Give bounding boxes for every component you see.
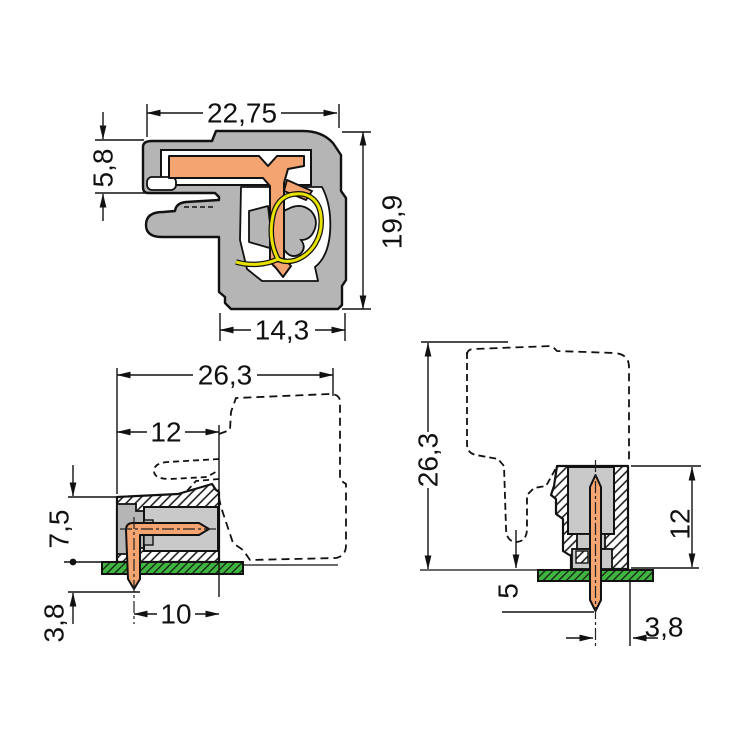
view-header-front: 26,3 12 5 3,8 — [413, 342, 702, 648]
pcb-board — [102, 562, 243, 574]
pedestal-hatch-detail — [576, 551, 588, 563]
mating-connector-dashed-lever — [154, 459, 219, 479]
dim-overall-height-label: 19,9 — [377, 195, 408, 250]
dim-base-width-label: 14,3 — [255, 315, 310, 346]
view-angled-socket-section: 22,75 5,8 19,9 14,3 — [88, 98, 408, 346]
dim-pin-to-edge-label: 3,8 — [645, 612, 684, 643]
mating-connector-dashed-lever — [467, 352, 556, 542]
mating-connector-dashed-top — [467, 346, 629, 464]
view-header-side: 26,3 12 7,5 3,8 10 — [39, 360, 347, 643]
connector-dimension-drawing: 22,75 5,8 19,9 14,3 — [0, 0, 750, 750]
dim-header-height-label: 12 — [665, 508, 696, 539]
dim-pin-below-board-label: 3,8 — [39, 604, 70, 643]
dim-pin-protrusion-label: 5 — [493, 583, 524, 599]
dim-header-depth-label: 12 — [150, 417, 181, 448]
technical-drawing-page: 22,75 5,8 19,9 14,3 — [0, 0, 750, 750]
mating-connector-dashed-body — [219, 394, 346, 560]
dim-height-above-board-label: 7,5 — [44, 510, 75, 549]
dim-pin-to-face-label: 10 — [160, 599, 191, 630]
dim-overall-depth-label: 26,3 — [198, 360, 253, 391]
dim-overall-width-label: 22,75 — [207, 98, 277, 129]
dim-overall-height-label: 26,3 — [413, 433, 444, 488]
dim-entry-height-label: 5,8 — [88, 149, 119, 188]
dim-dot-terminator — [70, 559, 77, 566]
